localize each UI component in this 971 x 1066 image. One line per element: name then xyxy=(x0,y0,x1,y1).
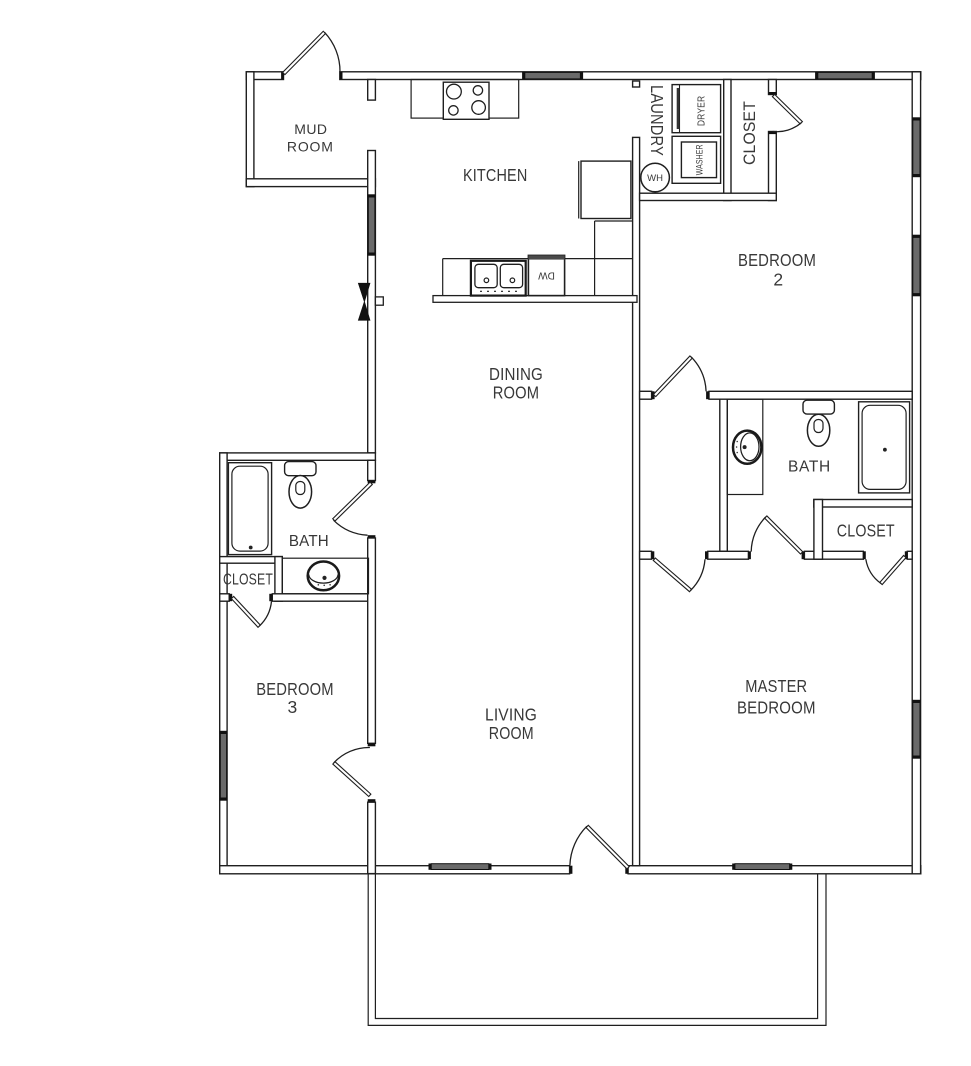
svg-text:MUD: MUD xyxy=(294,121,327,137)
svg-text:KITCHEN: KITCHEN xyxy=(463,165,528,185)
svg-text:ROOM: ROOM xyxy=(489,723,534,743)
svg-text:DINING: DINING xyxy=(489,364,543,384)
svg-text:DRYER: DRYER xyxy=(695,95,707,126)
svg-text:ROOM: ROOM xyxy=(493,382,540,402)
svg-text:MASTER: MASTER xyxy=(745,676,807,696)
svg-text:DW: DW xyxy=(538,269,555,280)
svg-text:2: 2 xyxy=(773,269,783,289)
svg-text:3: 3 xyxy=(288,697,298,717)
svg-text:CLOSET: CLOSET xyxy=(740,101,759,165)
svg-text:ROOM: ROOM xyxy=(287,139,333,155)
svg-text:BEDROOM: BEDROOM xyxy=(738,250,816,270)
svg-text:CLOSET: CLOSET xyxy=(223,572,273,589)
svg-text:BATH: BATH xyxy=(788,458,831,475)
svg-text:LAUNDRY: LAUNDRY xyxy=(647,85,667,156)
svg-text:BEDROOM: BEDROOM xyxy=(737,698,816,718)
svg-text:WH: WH xyxy=(647,173,663,184)
svg-text:LIVING: LIVING xyxy=(485,705,537,725)
svg-text:CLOSET: CLOSET xyxy=(837,520,895,540)
svg-text:BATH: BATH xyxy=(289,533,329,550)
svg-text:WASHER: WASHER xyxy=(695,144,706,175)
